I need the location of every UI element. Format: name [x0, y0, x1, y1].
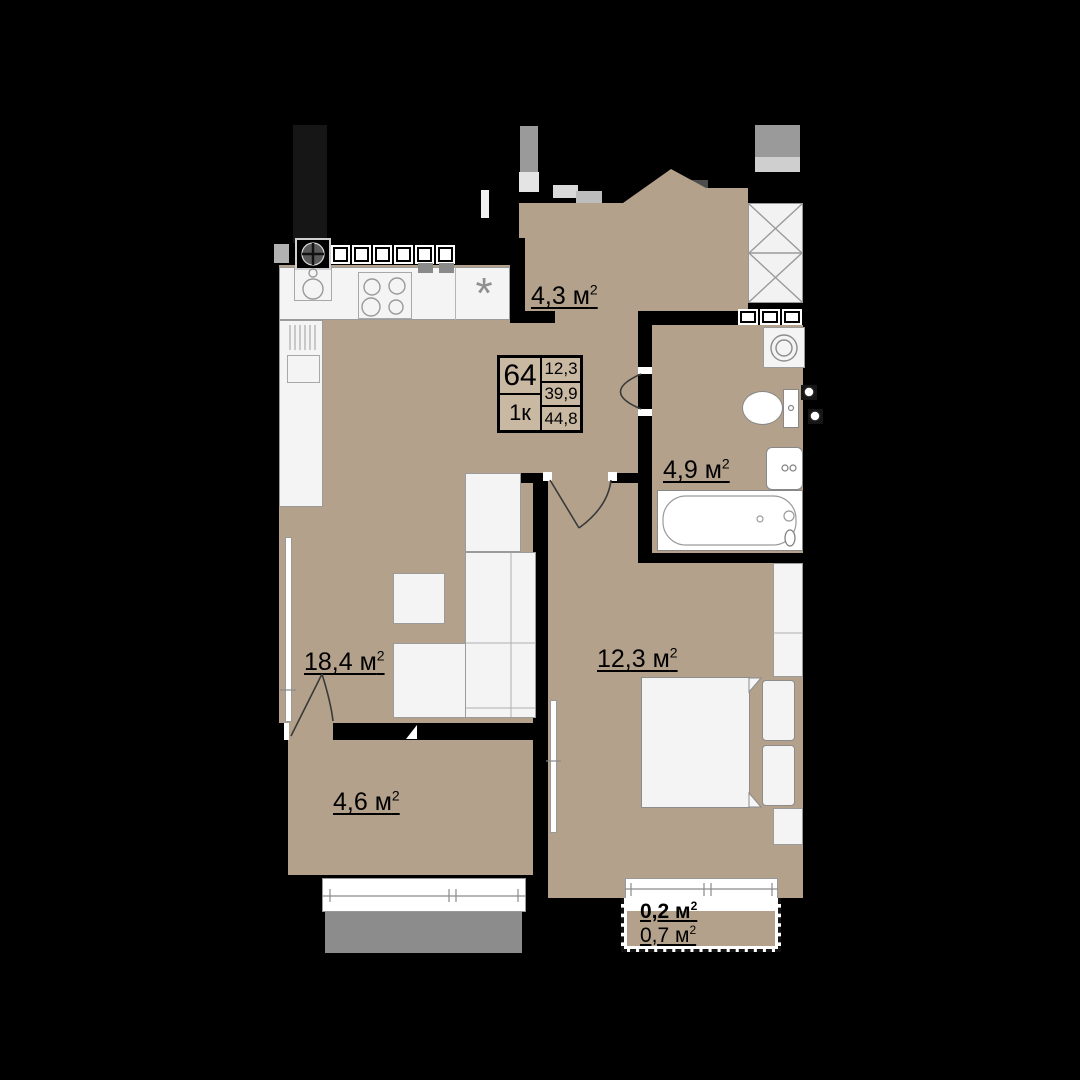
vent-block	[354, 247, 369, 262]
room-label-balcony: 0,7 м2	[640, 923, 696, 948]
unit-number: 64	[500, 358, 540, 393]
window	[550, 700, 557, 833]
vent-block	[784, 311, 800, 323]
toilet	[742, 391, 783, 425]
washing-machine	[763, 327, 805, 368]
stove	[358, 272, 412, 319]
vent-block	[438, 247, 453, 262]
entry-threshold	[553, 185, 578, 198]
unit-type: 1к	[500, 395, 540, 430]
vent-tab	[418, 263, 433, 273]
room-label-storage: 4,6 м2	[333, 788, 400, 817]
wardrobe	[773, 808, 803, 845]
unit-area-room: 12,3	[542, 358, 580, 381]
wardrobe	[773, 563, 803, 677]
window	[285, 537, 292, 722]
coffee-table	[393, 573, 445, 624]
vent-hood	[295, 238, 331, 270]
counter-divider	[455, 267, 456, 320]
room-label-hallway: 4,3 м2	[531, 282, 598, 311]
pillow	[762, 680, 795, 741]
wardrobe-closet	[748, 203, 803, 303]
sofa	[465, 552, 536, 718]
window-band	[322, 878, 526, 912]
entry-pier	[520, 126, 538, 172]
vent-block	[375, 247, 390, 262]
unit-info-box: 64 1к 12,3 39,9 44,8	[497, 355, 583, 433]
vent-block	[762, 311, 778, 323]
room-label-bathroom: 4,9 м2	[663, 456, 730, 485]
dishwasher-symbol: *	[470, 268, 498, 320]
wall	[638, 416, 652, 563]
vent-block	[396, 247, 411, 262]
wall	[638, 553, 803, 563]
neighbor-block	[755, 157, 800, 172]
wall	[638, 311, 803, 325]
wall	[638, 325, 652, 367]
wall-block	[481, 190, 489, 218]
toilet-tank	[783, 389, 799, 428]
wall	[510, 311, 555, 323]
unit-area-living: 39,9	[542, 383, 580, 406]
bed	[641, 677, 750, 808]
entry-threshold	[576, 191, 602, 203]
door-opening	[289, 723, 333, 740]
door-jamb	[543, 472, 552, 481]
kitchen-counter-side	[279, 320, 323, 507]
vent-block	[333, 247, 348, 262]
entry-step	[519, 172, 539, 192]
room-label-bedroom: 12,3 м2	[597, 645, 678, 674]
floor-corridor	[548, 473, 638, 568]
vent-block	[740, 311, 756, 323]
entry-door-leaf	[685, 180, 708, 192]
pipe-riser	[808, 409, 823, 424]
pillow	[762, 745, 795, 806]
room-label-balcony-small: 0,2 м2	[640, 899, 697, 924]
room-label-living-kitchen: 18,4 м2	[304, 648, 385, 677]
window-band	[625, 878, 778, 899]
door-jamb	[638, 367, 652, 374]
washbasin	[766, 447, 803, 490]
kitchen-sink	[294, 268, 332, 301]
bathtub	[657, 490, 803, 551]
pipe-riser	[801, 385, 817, 400]
unit-area-total: 44,8	[542, 407, 580, 430]
floor-storage	[288, 740, 536, 875]
sofa	[393, 643, 466, 718]
cabinet	[465, 473, 521, 552]
lower-terrace	[325, 912, 522, 953]
duct-shaft	[293, 125, 327, 243]
door-jamb	[638, 409, 652, 416]
wall-block	[274, 244, 289, 263]
door-jamb	[284, 723, 289, 740]
door-jamb	[608, 472, 617, 481]
vent-block	[417, 247, 432, 262]
neighbor-block	[755, 125, 800, 157]
vent-tab	[439, 263, 454, 273]
kitchen-cabinet	[287, 355, 320, 383]
floorplan: * 64 1к 12,3 39,9 44,8 4,3 м2	[0, 0, 1080, 1080]
